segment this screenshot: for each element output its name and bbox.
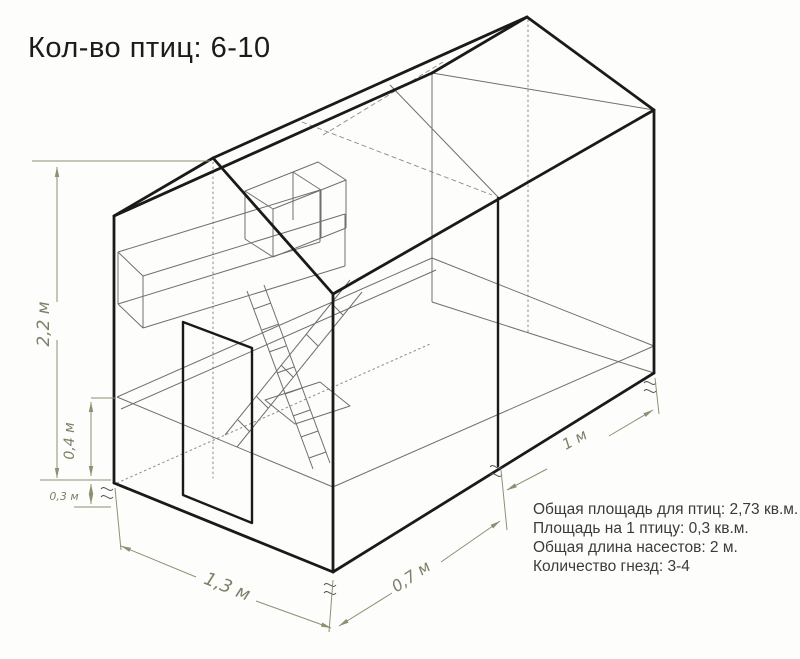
dim-label-floor-height: 0,4 м: [62, 422, 78, 460]
coop-blueprint-page: 2,2 м 0,4 м 0,3 м 1,3 м 0,7 м 1 м Кол-во…: [0, 0, 800, 659]
floor-platform-lines: [117, 258, 654, 487]
chicken-ladder: [247, 285, 330, 469]
far-wall-bottom-edge: [432, 302, 654, 373]
dim-label-ground-clearance: 0,3 м: [49, 490, 78, 503]
floor-front-edge: [117, 397, 333, 487]
dimension-labels: 2,2 м 0,4 м 0,3 м 1,3 м 0,7 м 1 м: [34, 301, 590, 605]
ladder-rail: [247, 291, 313, 469]
right-eave: [333, 110, 654, 294]
structure-outline: [114, 17, 654, 572]
dim-label-front-width: 1,3 м: [201, 568, 253, 605]
floor-left-edge: [117, 258, 432, 397]
near-gable-left-slope: [114, 158, 213, 216]
info-perch-length: Общая длина насестов: 2 м.: [533, 538, 798, 557]
left-eave: [114, 73, 432, 216]
front-bottom-edge: [114, 483, 333, 572]
perch-rails: [118, 190, 345, 328]
hidden-dotted-lines: [117, 20, 528, 483]
info-total-area: Общая площадь для птиц: 2,73 кв.м.: [533, 500, 798, 519]
page-title: Кол-во птиц: 6-10: [28, 32, 271, 65]
near-gable-right-slope: [213, 158, 333, 294]
hidden-roof-brace: [323, 62, 443, 135]
far-gable-right-slope: [527, 17, 654, 110]
dim-label-house-depth: 0,7 м: [388, 557, 434, 596]
far-gable-left-slope: [432, 17, 527, 73]
far-wall-lines: [390, 73, 654, 373]
floor-far-edge: [432, 258, 654, 346]
info-area-per-bird: Площадь на 1 птицу: 0,3 кв.м.: [533, 519, 798, 538]
dim-label-total-height: 2,2 м: [34, 301, 54, 346]
hidden-partition-top-edge: [302, 122, 492, 195]
hidden-dashed-lines: [302, 62, 492, 195]
ramp-rungs: [238, 303, 343, 432]
partition-roof-edge: [390, 85, 498, 197]
far-wall-top-edge: [432, 73, 654, 110]
info-nest-count: Количество гнезд: 3-4: [533, 557, 798, 576]
info-block: Общая площадь для птиц: 2,73 кв.м. Площа…: [533, 500, 798, 576]
floor-inner-edge: [121, 270, 436, 409]
